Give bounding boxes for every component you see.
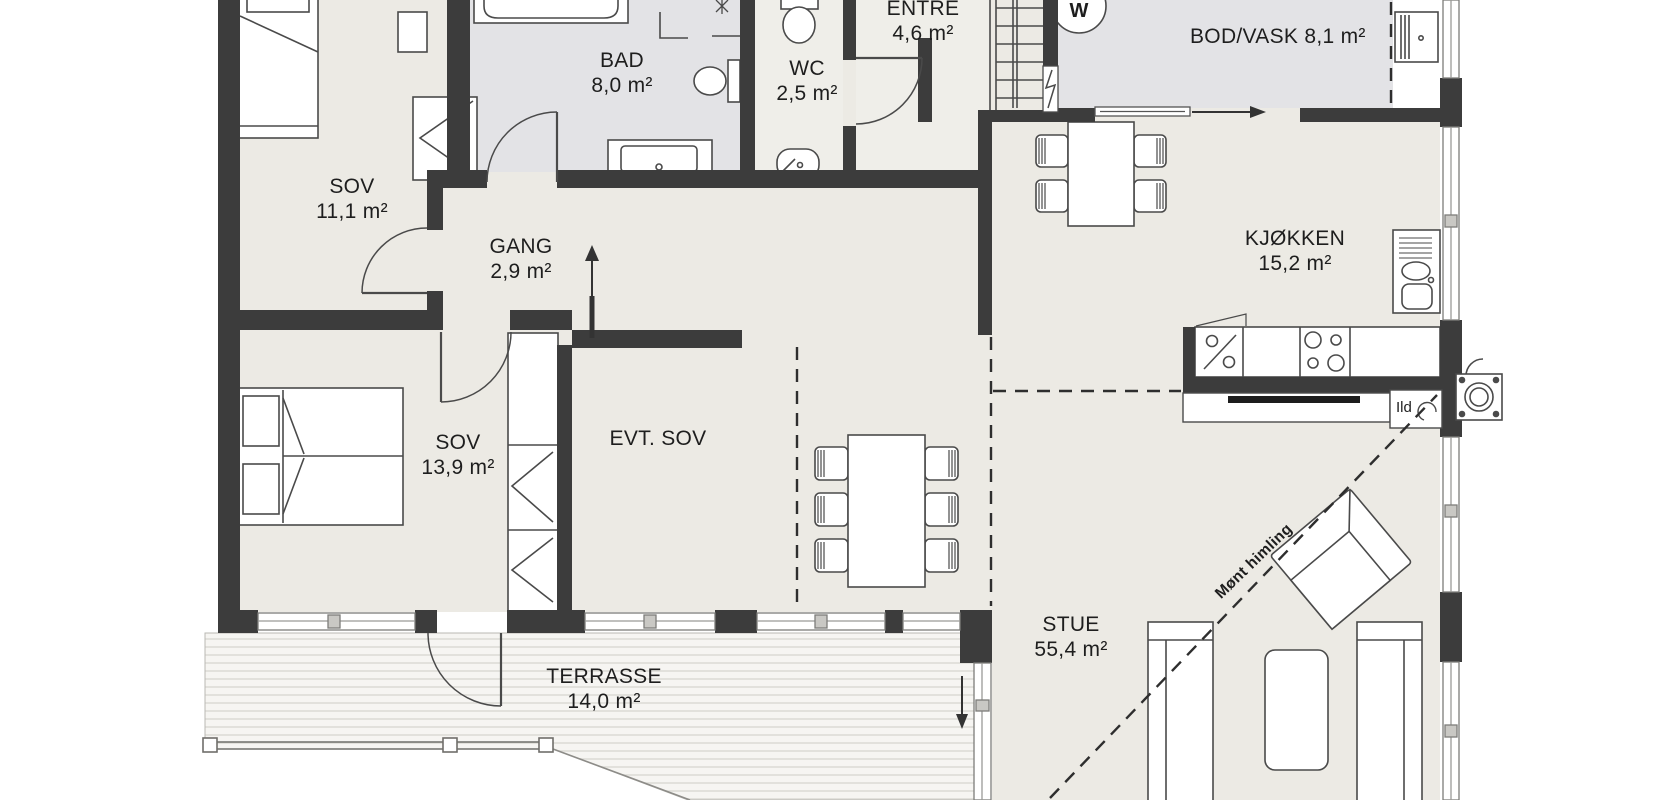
nightstand: [398, 12, 427, 52]
room-label-gang: GANG 2,9 m²: [489, 234, 552, 284]
room-label-bod-vask: BOD/VASK 8,1 m²: [1190, 24, 1324, 49]
room-area: 4,6 m²: [887, 21, 960, 46]
coffee-table: [1265, 650, 1328, 770]
bed-single: [238, 0, 318, 138]
room-area: 2,9 m²: [489, 259, 552, 284]
washer-label: W: [1070, 0, 1089, 23]
room-area: 55,4 m²: [1034, 637, 1107, 662]
wall-sov2-evtsov: [557, 345, 572, 612]
deck-surface: [205, 633, 975, 800]
wall-bod-kjokken: [1058, 108, 1095, 122]
fireplace-label: Ild: [1396, 399, 1412, 416]
room-label-sov1: SOV 11,1 m²: [316, 174, 388, 224]
bathtub: [474, 0, 628, 23]
room-name: SOV: [421, 430, 494, 455]
kitchen-sink: [1393, 230, 1440, 313]
room-label-evt-sov: EVT. SOV: [610, 426, 707, 451]
room-name: GANG: [489, 234, 552, 259]
window-right-1: [1443, 0, 1459, 78]
wall-sov2-top: [218, 310, 437, 330]
window-bottom-3: [757, 613, 885, 630]
sliding-door: [1095, 107, 1190, 116]
terrace-deck: [203, 633, 975, 800]
wall-wc-entre: [843, 0, 856, 60]
floor-bod-vask: [1058, 0, 1393, 108]
hearth-bar: [1228, 396, 1360, 403]
wall-sov1-bad: [447, 0, 470, 188]
bed-double: [237, 388, 403, 525]
chimney-icon: [1456, 359, 1502, 420]
window-bottom-1: [258, 613, 415, 630]
room-name: KJØKKEN: [1245, 226, 1345, 251]
window-right-3: [1443, 437, 1459, 592]
room-name: ENTRE: [887, 0, 960, 21]
room-name: WC: [776, 56, 837, 81]
room-label-stue: STUE 55,4 m²: [1034, 612, 1107, 662]
wall-corridor-kitchen: [978, 122, 992, 335]
window-bottom-4: [903, 613, 960, 630]
sofa-right: [1357, 622, 1422, 800]
room-label-terrasse: TERRASSE 14,0 m²: [546, 664, 662, 714]
room-area: 11,1 m²: [316, 199, 388, 224]
room-name: STUE: [1034, 612, 1107, 637]
electrical-panel-icon: [1043, 66, 1058, 112]
room-label-bad: BAD 8,0 m²: [591, 48, 652, 98]
floor-plan-canvas: SOV 11,1 m² BAD 8,0 m² WC 2,5 m² ENTRE 4…: [0, 0, 1670, 800]
wall-entre-bod: [1043, 0, 1058, 66]
room-area: 14,0 m²: [546, 689, 662, 714]
room-label-entre: ENTRE 4,6 m²: [887, 0, 960, 46]
room-name: TERRASSE: [546, 664, 662, 689]
dining-set: [815, 435, 958, 587]
room-name: SOV: [316, 174, 388, 199]
room-area: 8,0 m²: [591, 73, 652, 98]
wall-bad-gang: [557, 170, 990, 188]
wall-evtsov-top: [572, 330, 742, 348]
window-right-4: [1443, 662, 1459, 800]
room-label-kjokken: KJØKKEN 15,2 m²: [1245, 226, 1345, 276]
room-name: EVT. SOV: [610, 426, 707, 451]
room-area: 8,1 m²: [1304, 25, 1365, 48]
room-area: 2,5 m²: [776, 81, 837, 106]
wall-exterior-bottom: [218, 610, 258, 633]
window-bottom-2: [585, 613, 715, 630]
room-label-sov2: SOV 13,9 m²: [421, 430, 494, 480]
room-area: 13,9 m²: [421, 455, 494, 480]
fridge: [1395, 12, 1438, 62]
room-area: 15,2 m²: [1245, 251, 1345, 276]
wall-exterior-right: [1440, 78, 1462, 127]
wall-bad-wc: [740, 0, 755, 188]
window-stue-terrace: [974, 663, 991, 800]
room-name: BAD: [591, 48, 652, 73]
room-name: BOD/VASK: [1190, 25, 1298, 48]
window-right-2: [1443, 127, 1459, 320]
floor-plan-drawing: [0, 0, 1670, 800]
room-label-wc: WC 2,5 m²: [776, 56, 837, 106]
wall-corner-stue: [960, 610, 992, 663]
sofa-left: [1148, 622, 1213, 800]
wardrobe-sov2: [508, 333, 558, 612]
